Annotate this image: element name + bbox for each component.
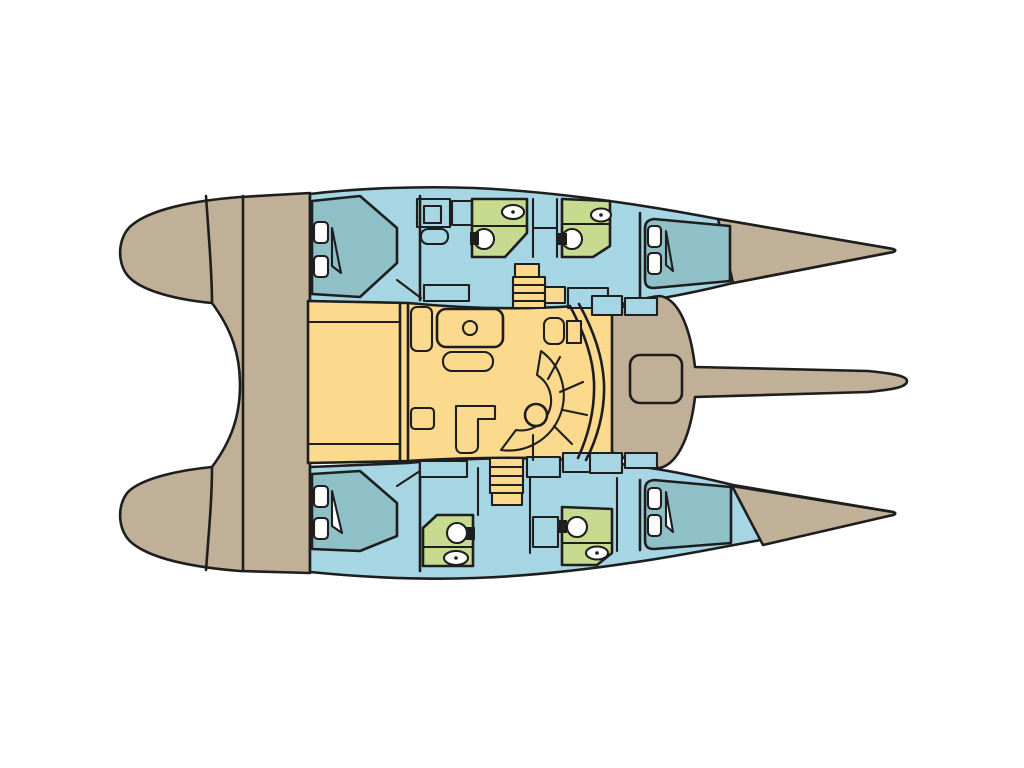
berth-pillow	[648, 515, 661, 536]
helm-instrument	[567, 321, 581, 343]
berth-pillow	[314, 222, 328, 243]
helm-seat	[544, 318, 564, 344]
saloon-table-detail	[463, 321, 477, 335]
berth-pillow	[648, 488, 661, 509]
washbasin-tap	[558, 233, 567, 245]
companionway-threshold	[424, 285, 469, 301]
port-stairs-side-step	[545, 287, 565, 303]
berth-pillow	[314, 518, 328, 539]
toilet-flush-dot	[454, 556, 458, 560]
dinette-stool	[525, 404, 547, 426]
berth-pillow	[648, 253, 661, 274]
toilet-flush-dot	[595, 551, 599, 555]
washbasin	[567, 517, 587, 537]
companionway-threshold	[420, 461, 467, 477]
starboard-stairs-bottom-step	[492, 493, 522, 505]
catamaran-deck-plan	[0, 0, 1024, 768]
stern-platform	[120, 193, 310, 573]
berth-pillow	[314, 486, 328, 507]
washbasin-tap	[466, 527, 475, 540]
washbasin-tap	[558, 520, 567, 533]
toilet-flush-dot	[599, 213, 603, 217]
saloon-side-seat	[411, 307, 432, 351]
washbasin	[447, 523, 467, 543]
port-bow-deck	[718, 219, 895, 283]
foredeck-hatch	[630, 355, 682, 403]
saloon-side-unit	[411, 408, 434, 429]
saloon-bench	[443, 352, 493, 371]
port-stairs-top-step	[515, 264, 539, 277]
companionway-threshold	[625, 298, 657, 315]
companionway-threshold	[592, 296, 622, 315]
companionway-threshold	[625, 453, 657, 468]
toilet-flush-dot	[511, 210, 515, 214]
deck-plan-drawing	[0, 0, 1024, 768]
berth-pillow	[648, 226, 661, 247]
companionway-threshold	[590, 453, 622, 473]
washbasin-tap	[470, 232, 479, 245]
berth-pillow	[314, 256, 328, 277]
